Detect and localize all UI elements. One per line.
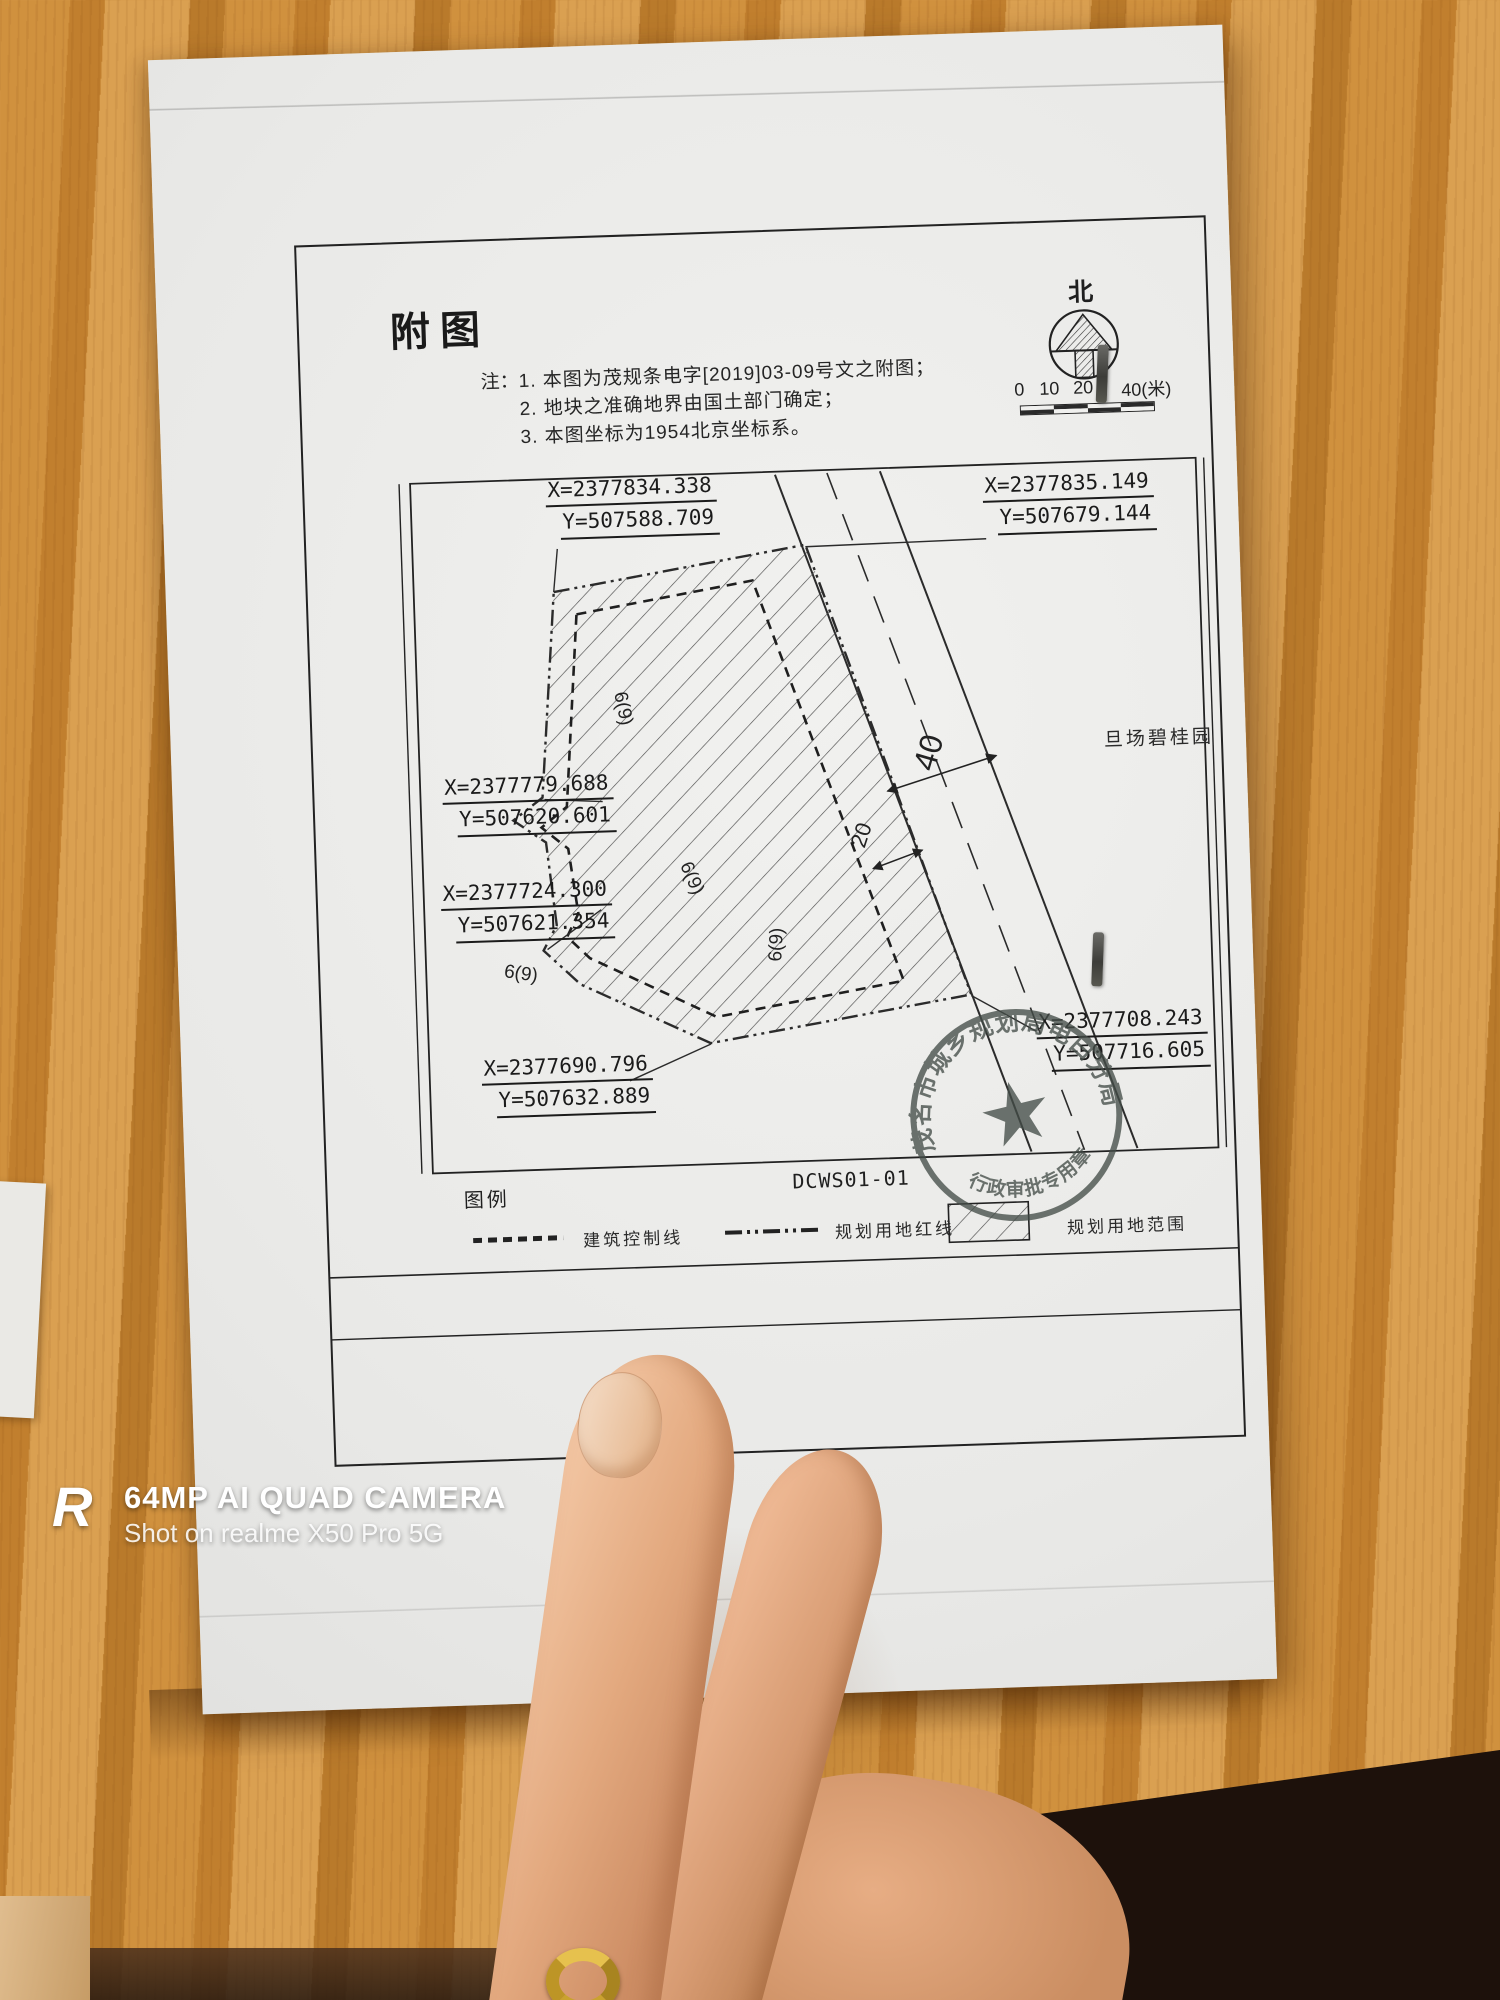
offset-dim-label: 6(9): [503, 961, 539, 987]
stamp-star-icon: [977, 1074, 1054, 1149]
stamp-bottom-text: 行政审批专用章: [960, 1139, 1102, 1215]
coord-label-ne: X=2377835.149 Y=507679.144: [982, 465, 1157, 536]
coord-label-w2: X=2377724.300 Y=507621.354: [440, 873, 615, 944]
watermark-subtitle: Shot on realme X50 Pro 5G: [124, 1518, 443, 1549]
map-border-double-left: [399, 484, 422, 1174]
staple-mark: [1091, 932, 1104, 986]
coord-y: Y=507621.354: [455, 906, 615, 944]
svg-text:行政审批专用章: 行政审批专用章: [960, 1139, 1102, 1215]
frame-divider: [329, 1248, 1238, 1278]
photo-scene: 附图 注： 1. 本图为茂规条电字[2019]03-09号文之附图； 2. 地块…: [0, 0, 1500, 2000]
coord-y: Y=507588.709: [560, 502, 720, 540]
adjacent-site-label: 旦场碧桂园: [1103, 721, 1214, 752]
second-paper-corner: [0, 1181, 46, 1419]
realme-logo-icon: R: [52, 1474, 92, 1539]
coord-y: Y=507632.889: [496, 1080, 656, 1118]
frame-divider: [331, 1310, 1240, 1340]
watermark-title: 64MP AI QUAD CAMERA: [124, 1480, 506, 1516]
legend-item-label: 建筑控制线: [583, 1223, 684, 1251]
coord-label-w1: X=2377779.688 Y=507620.601: [442, 767, 617, 838]
coord-y: Y=507679.144: [997, 498, 1157, 536]
coord-label-nw: X=2377834.338 Y=507588.709: [545, 470, 720, 541]
road-width-dim-label: 40: [906, 730, 950, 774]
staple-mark: [1096, 345, 1109, 403]
coord-label-sw: X=2377690.796 Y=507632.889: [481, 1048, 656, 1119]
desk-leg: [0, 1896, 90, 2000]
drawing-number: DCWS01-01: [792, 1166, 910, 1194]
legend-redline-swatch: [725, 1230, 823, 1233]
offset-dim-label: 6(9): [765, 927, 788, 962]
official-stamp: 茂名市城乡规划局电白分局 行政审批专用章: [895, 994, 1137, 1236]
coord-y: Y=507620.601: [457, 800, 617, 838]
legend-title: 图例: [463, 1183, 510, 1214]
